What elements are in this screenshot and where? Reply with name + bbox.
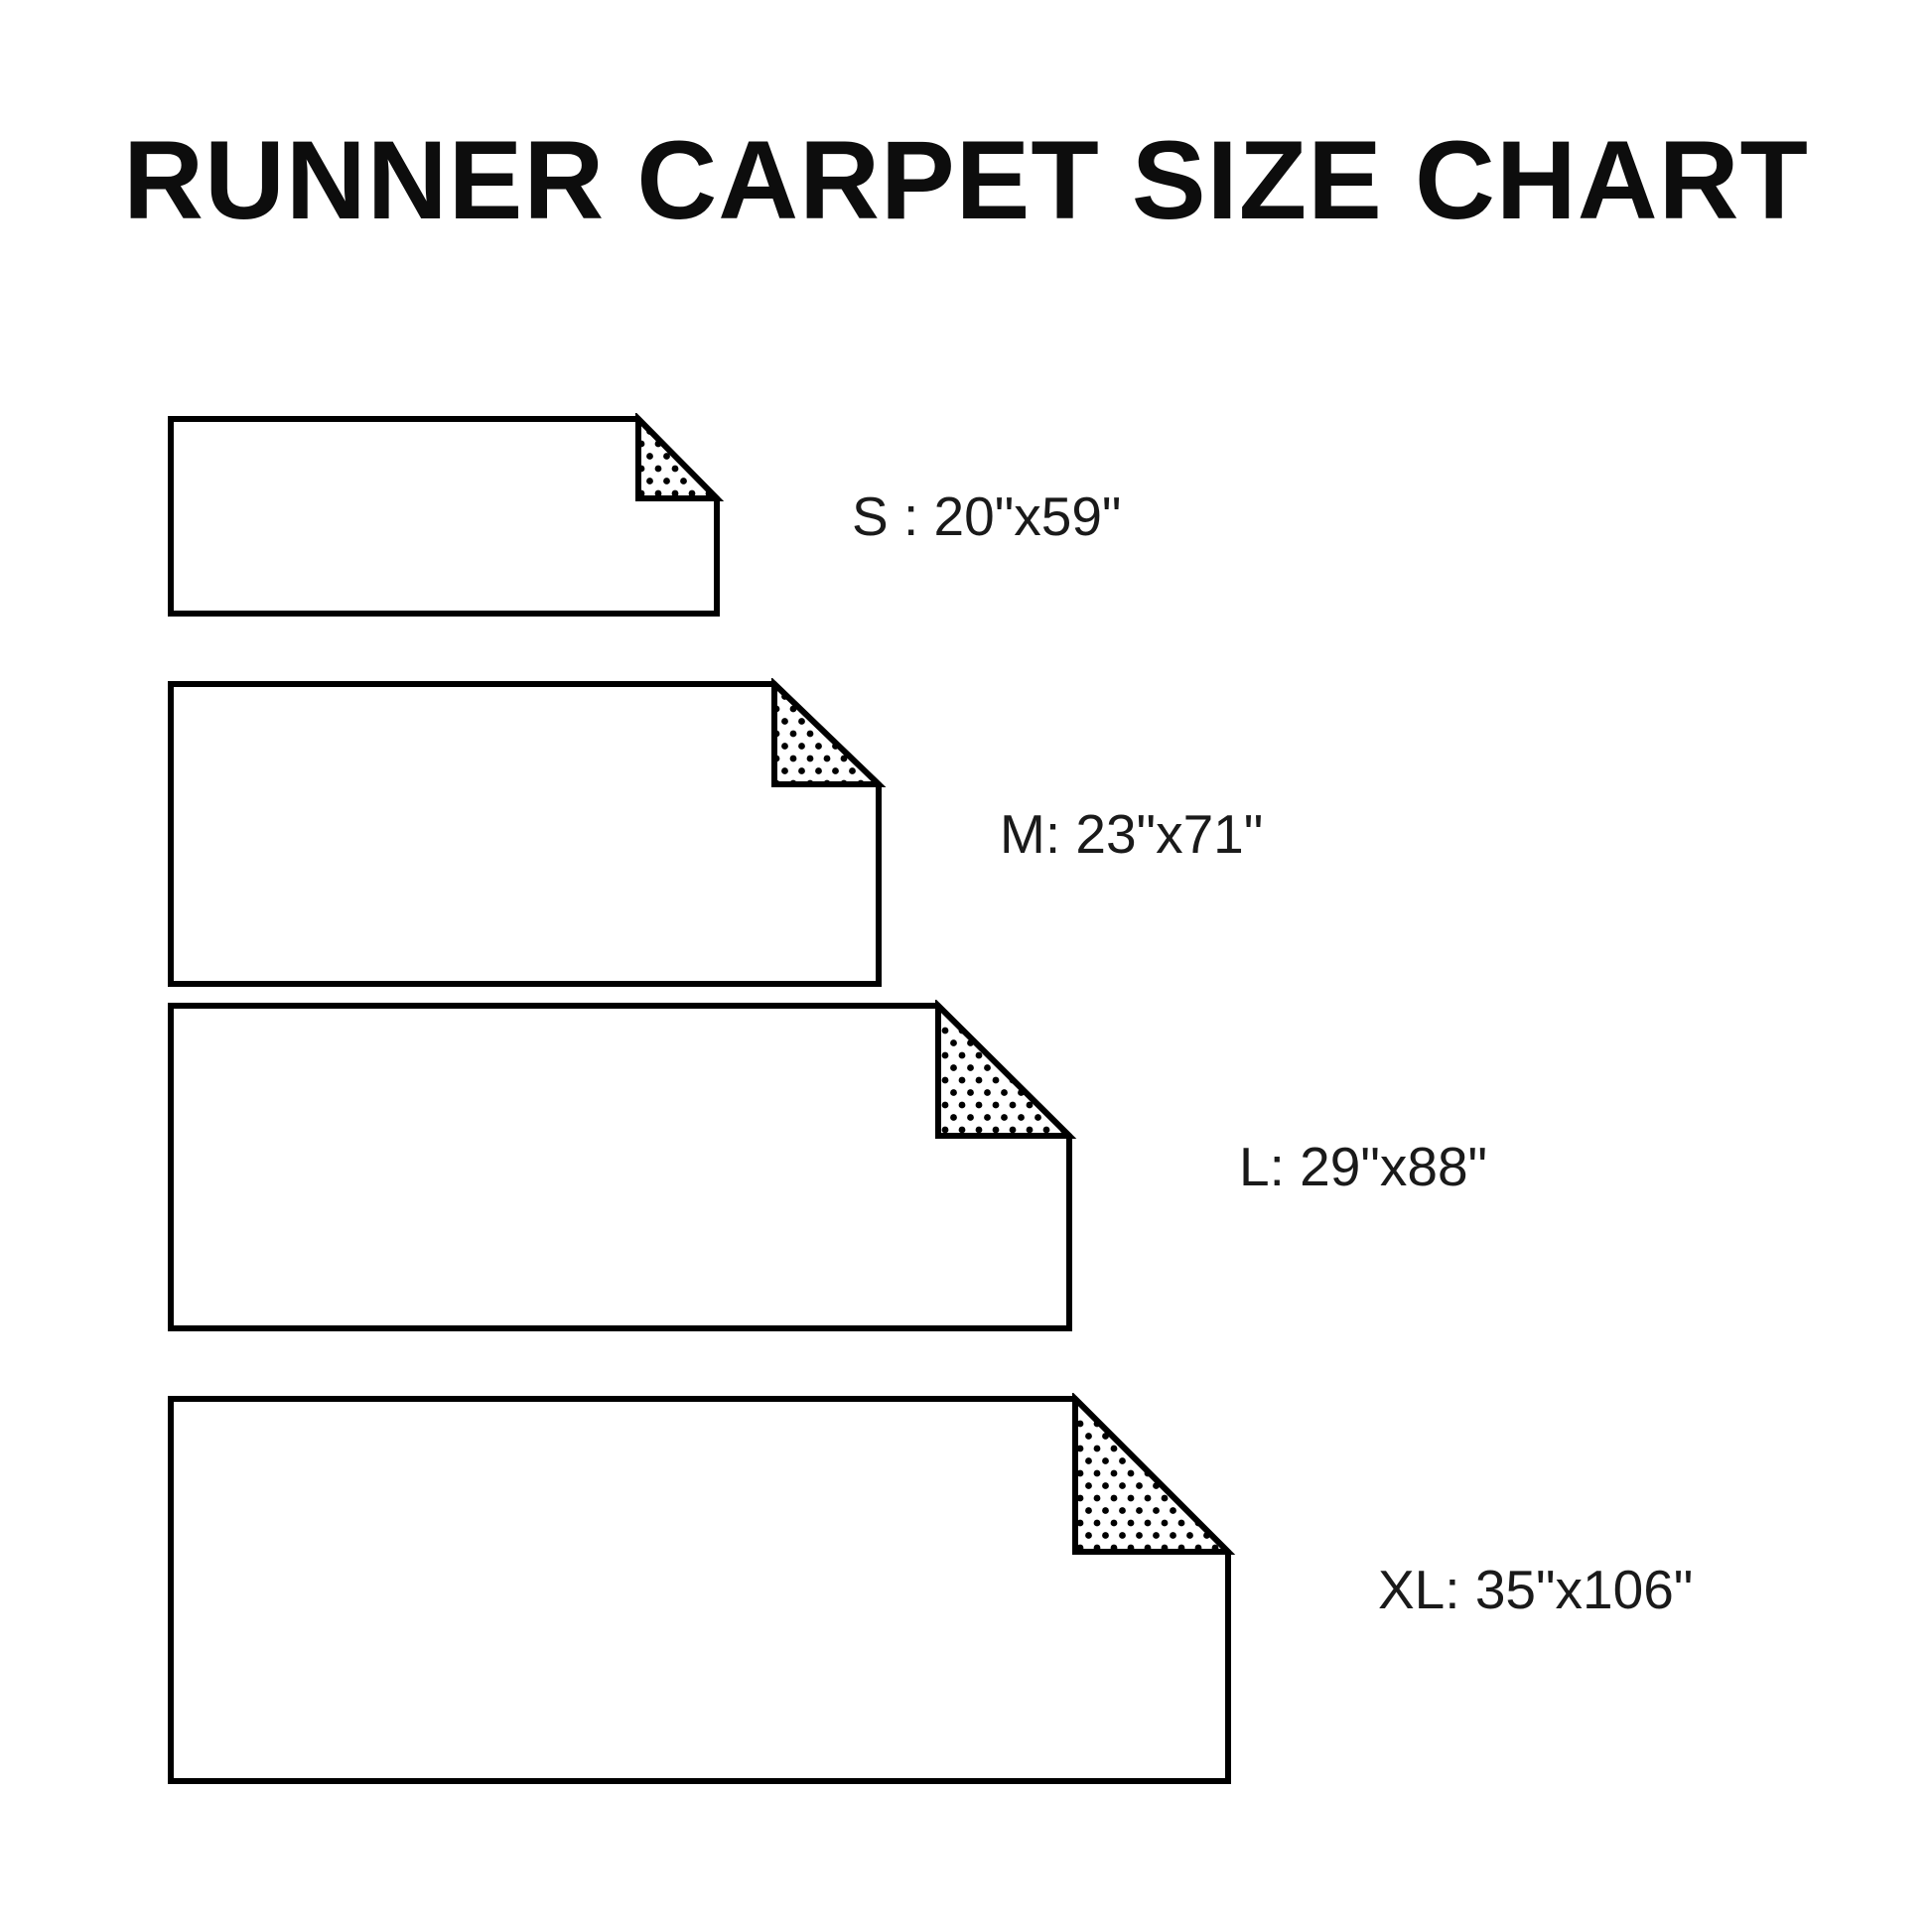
carpet-outline-s — [171, 419, 717, 614]
size-label-xl: XL: 35"x106" — [1378, 1560, 1693, 1620]
carpet-diagram-xl — [165, 1393, 1236, 1789]
carpet-diagram-l — [165, 1000, 1077, 1336]
size-label-s: S : 20"x59" — [852, 486, 1121, 547]
chart-title: RUNNER CARPET SIZE CHART — [0, 125, 1932, 236]
carpet-outline-xl — [171, 1399, 1228, 1781]
carpet-fold-corner-xl — [1075, 1399, 1228, 1552]
size-label-l: L: 29"x88" — [1239, 1137, 1487, 1197]
carpet-outline-l — [171, 1006, 1069, 1328]
runner-carpet-size-chart: RUNNER CARPET SIZE CHART S : 20"x59" M: … — [0, 0, 1932, 1932]
carpet-fold-corner-l — [938, 1006, 1069, 1136]
size-label-m: M: 23"x71" — [1000, 804, 1263, 865]
carpet-fold-corner-m — [774, 684, 879, 784]
carpet-diagram-s — [165, 413, 725, 621]
carpet-diagram-m — [165, 678, 887, 992]
carpet-fold-corner-s — [638, 419, 717, 498]
